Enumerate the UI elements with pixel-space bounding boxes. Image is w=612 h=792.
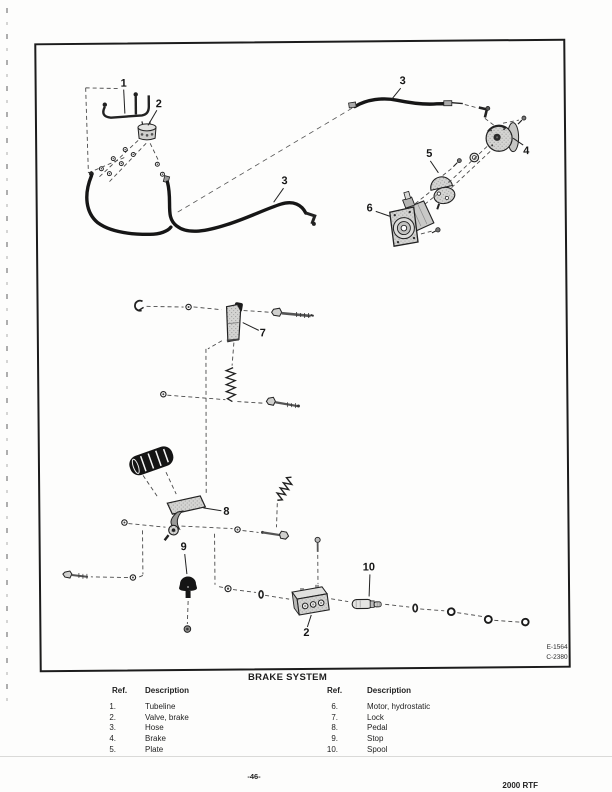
- leader-7: [243, 322, 259, 330]
- row-ref: 8.: [318, 723, 338, 734]
- diagram-frame: 1 2: [34, 39, 570, 673]
- part-oring-a: [259, 591, 263, 598]
- part-plate-bolt: [442, 159, 461, 176]
- table-row: 10.Spool: [318, 745, 430, 756]
- row-ref: 4.: [96, 734, 116, 745]
- dashed-line: [128, 523, 165, 527]
- parts-table-left: 1.Tubeline 2.Valve, brake 3.Hose 4.Brake…: [96, 702, 189, 756]
- part-washer-c: [122, 520, 127, 525]
- table-row: 7.Lock: [318, 713, 430, 724]
- callout-5: 5: [426, 148, 432, 160]
- part-washer-f: [225, 586, 231, 592]
- callout-3-lower: 3: [281, 175, 287, 187]
- callout-7: 7: [260, 327, 266, 339]
- dashed-line: [147, 306, 184, 307]
- row-ref: 2.: [96, 713, 116, 724]
- part-plate: [429, 175, 458, 210]
- leader-1: [124, 90, 125, 114]
- part-motor: [390, 191, 441, 246]
- row-desc: Plate: [145, 745, 163, 756]
- dashed-line: [166, 472, 176, 494]
- leader-2b: [307, 615, 311, 627]
- scan-artifact-line: [6, 8, 8, 708]
- part-pedal-pad: [127, 444, 176, 478]
- table-row: 8.Pedal: [318, 723, 430, 734]
- table-row: 9.Stop: [318, 734, 430, 745]
- leader-3b: [274, 188, 284, 202]
- leader-10: [369, 574, 370, 596]
- dashed-line: [237, 401, 265, 403]
- row-desc: Brake: [145, 734, 166, 745]
- table-row: 3.Hose: [96, 723, 189, 734]
- table-row: 5.Plate: [96, 745, 189, 756]
- footer-divider: [0, 756, 612, 757]
- leader-8: [203, 508, 221, 511]
- part-valve-bolt: [315, 537, 321, 584]
- page-title: BRAKE SYSTEM: [0, 672, 575, 683]
- part-hose-upper: [349, 98, 494, 127]
- callout-1: 1: [121, 78, 127, 90]
- page-number: -46-: [232, 772, 276, 781]
- part-lock: [227, 302, 244, 342]
- manual-page: 1 2: [0, 0, 612, 792]
- dashed-line: [143, 475, 157, 496]
- row-ref: 7.: [318, 713, 338, 724]
- col1-ref-header: Ref.: [112, 686, 127, 695]
- dashed-routing-line: [177, 107, 356, 213]
- dashed-line: [276, 503, 277, 527]
- table-row: 6.Motor, hydrostatic: [318, 702, 430, 713]
- part-hook-clip: [135, 301, 144, 311]
- row-desc: Tubeline: [145, 702, 175, 713]
- brake-system-diagram: 1 2: [36, 41, 568, 671]
- row-desc: Motor, hydrostatic: [367, 702, 430, 713]
- leader-5: [430, 161, 438, 173]
- row-desc: Spool: [367, 745, 387, 756]
- table-row: 2.Valve, brake: [96, 713, 189, 724]
- part-tubeline: [102, 92, 148, 118]
- callout-2: 2: [156, 98, 162, 110]
- col2-desc-header: Description: [367, 686, 411, 695]
- part-valve-block: [292, 585, 329, 615]
- callout-6: 6: [367, 202, 373, 214]
- part-bolt-left: [63, 571, 88, 579]
- part-washer-d: [130, 575, 135, 580]
- col1-desc-header: Description: [145, 686, 189, 695]
- row-desc: Pedal: [367, 723, 387, 734]
- figure-code-1: E-1564: [547, 644, 568, 651]
- callout-2-lower: 2: [303, 627, 309, 639]
- part-hose-left: [87, 171, 171, 235]
- part-valve-top: [138, 121, 156, 140]
- row-desc: Valve, brake: [145, 713, 189, 724]
- part-oring-chain: [385, 603, 528, 627]
- row-ref: 1.: [96, 702, 116, 713]
- figure-code-2: C-2380: [546, 654, 568, 661]
- part-spring-mid: [226, 343, 236, 402]
- table-row: 4.Brake: [96, 734, 189, 745]
- leader-3t: [392, 88, 401, 99]
- part-bolt-right: [261, 531, 289, 540]
- row-ref: 3.: [96, 723, 116, 734]
- col2-ref-header: Ref.: [327, 686, 342, 695]
- part-stop: [179, 554, 198, 632]
- dashed-bolt-path-left: [91, 530, 143, 577]
- leader-6: [376, 211, 390, 216]
- row-desc: Stop: [367, 734, 383, 745]
- row-desc: Hose: [145, 723, 164, 734]
- dashed-drop-lines: [205, 341, 223, 494]
- callout-9: 9: [181, 541, 187, 553]
- dashed-line: [167, 395, 225, 401]
- dashed-line: [243, 530, 259, 532]
- row-desc: Lock: [367, 713, 384, 724]
- dashed-line: [181, 526, 232, 529]
- part-fittings-chain: [99, 140, 164, 184]
- part-spool: [331, 598, 381, 608]
- part-brake-drum: [486, 123, 519, 152]
- table-row: 1.Tubeline: [96, 702, 189, 713]
- part-spring-right: [274, 475, 295, 502]
- row-ref: 10.: [318, 745, 338, 756]
- part-washer-e: [235, 527, 240, 532]
- parts-table-right: 6.Motor, hydrostatic 7.Lock 8.Pedal 9.St…: [318, 702, 430, 756]
- row-ref: 9.: [318, 734, 338, 745]
- callout-10: 10: [363, 561, 375, 573]
- dashed-line: [194, 307, 222, 310]
- callout-4: 4: [523, 145, 530, 157]
- part-bolt-mid: [266, 397, 300, 408]
- row-ref: 6.: [318, 702, 338, 713]
- model-name: 2000 RTF: [468, 781, 538, 792]
- part-washer-b: [161, 391, 166, 396]
- dashed-guide-triangle: [86, 88, 125, 173]
- callout-3-upper: 3: [399, 75, 405, 87]
- part-hose-main: [163, 174, 316, 231]
- part-retainer-ring: [470, 153, 479, 162]
- part-bolt-long: [244, 308, 314, 319]
- row-ref: 5.: [96, 745, 116, 756]
- part-washer-a: [186, 304, 191, 309]
- part-pedal: [164, 496, 205, 540]
- footer-brand: 2000 RTF Operator's Manual: [468, 760, 538, 792]
- callout-8: 8: [223, 506, 229, 518]
- leader-2: [148, 110, 157, 125]
